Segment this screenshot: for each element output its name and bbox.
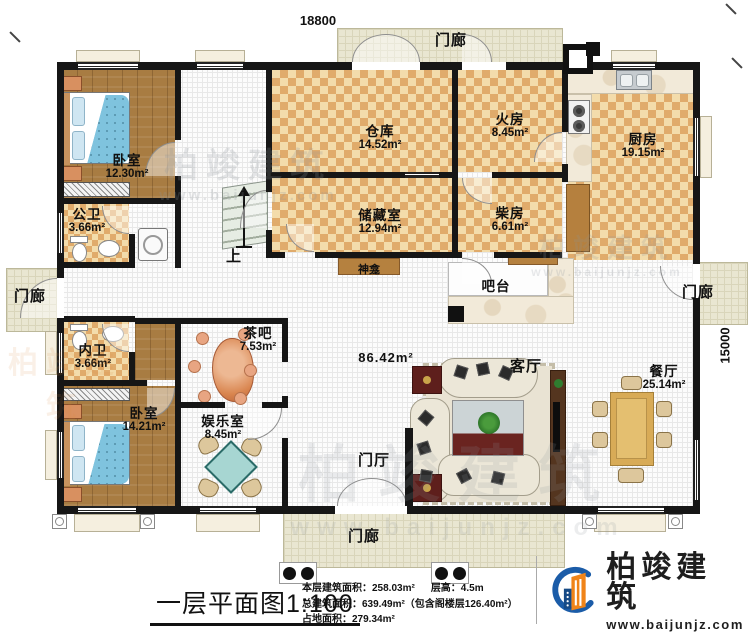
bed-sheet-fold [87, 424, 107, 484]
window [693, 118, 700, 176]
plant [478, 412, 500, 434]
washing-machine [138, 228, 168, 261]
column-marker [582, 514, 597, 529]
tea-stool [244, 364, 257, 377]
pillow [72, 131, 85, 160]
tea-stool [196, 332, 209, 345]
dining-chair [618, 468, 644, 483]
dining-table-top [616, 398, 647, 459]
label-tea-bar: 茶吧7.53m² [228, 326, 288, 354]
wall-segment [57, 198, 181, 204]
window-sill [76, 50, 140, 62]
window-sill [195, 50, 245, 62]
label-porch-bottom: 门廊 [338, 528, 390, 546]
sink-bowl [636, 74, 649, 87]
burner [573, 120, 585, 132]
label-firewood: 柴房6.61m² [475, 206, 545, 234]
window-sill [74, 514, 140, 532]
dining-chair [656, 401, 672, 417]
pillow [72, 456, 85, 482]
brand-text: 柏竣建筑 www.baijunjz.com [606, 553, 744, 632]
window-sill [611, 50, 657, 62]
wall-segment [57, 262, 135, 268]
brand-logo-icon [548, 563, 598, 621]
window [598, 506, 664, 514]
sofa-pillow [419, 469, 433, 483]
bar-column [448, 306, 464, 322]
dining-chair [656, 432, 672, 448]
dimension-width: 18800 [288, 13, 348, 28]
sink [98, 240, 120, 257]
column-marker [140, 514, 155, 529]
end-table [412, 366, 442, 394]
label-warehouse: 仓库14.52m² [340, 124, 420, 152]
wall-segment [405, 428, 413, 508]
door-opening [335, 506, 407, 514]
label-bedroom1: 卧室12.30m² [92, 153, 162, 181]
door-opening [57, 278, 64, 318]
wall-segment [282, 438, 288, 508]
wall-segment [175, 176, 181, 268]
window [78, 506, 136, 514]
wall-segment [315, 252, 462, 258]
dimension-height: 15000 [718, 316, 733, 376]
tv [553, 402, 560, 452]
label-kitchen: 厨房19.15m² [603, 132, 683, 160]
column-marker [668, 514, 683, 529]
washer-drum [143, 235, 163, 255]
wall-segment [452, 68, 458, 258]
window [197, 62, 243, 70]
label-storage: 储藏室12.94m² [335, 208, 425, 236]
wall-segment [262, 402, 288, 408]
wall-segment [562, 164, 568, 182]
brand-logo: 柏竣建筑 www.baijunjz.com [548, 560, 744, 624]
window [78, 62, 138, 70]
chimney-flue [586, 42, 600, 56]
wall-segment [562, 68, 568, 132]
window [693, 440, 700, 500]
footer-divider [536, 556, 537, 624]
label-public-bath: 公卫3.66m² [58, 207, 116, 235]
brand-name: 柏竣建筑 [606, 553, 744, 613]
wardrobe [62, 388, 130, 401]
door-opening [352, 62, 420, 70]
label-foyer: 门厅 [344, 452, 404, 470]
brand-url: www.baijunjz.com [606, 617, 744, 632]
label-shrine: 神龛 [338, 260, 400, 278]
wall-segment [492, 172, 562, 178]
window-sill [594, 514, 666, 532]
dimension-tick [731, 57, 742, 68]
window [613, 62, 655, 70]
tea-stool [188, 360, 201, 373]
label-bar: 吧台 [466, 278, 526, 296]
window-sill [700, 116, 712, 178]
bar-counter-front [448, 296, 574, 324]
stairs-up-label: 上 [222, 248, 246, 266]
toilet-bowl [72, 243, 87, 262]
toilet [70, 324, 88, 331]
window-sill [196, 514, 260, 532]
label-inner-bath: 内卫3.66m² [64, 343, 122, 371]
end-table-lamp [423, 484, 431, 492]
stats-line1: 本层建筑面积：258.03m²层高：4.5m [302, 581, 532, 597]
warehouse-floor [272, 70, 452, 172]
toilet [70, 236, 88, 243]
wall-segment [175, 68, 181, 140]
wall-segment [494, 252, 562, 258]
floor-plan: 18800 15000 上 [0, 0, 750, 630]
label-porch-top: 门廊 [426, 32, 476, 50]
kitchen-cabinet [566, 184, 590, 252]
column-marker [52, 514, 67, 529]
window [405, 172, 439, 178]
window [57, 333, 64, 373]
pillow [72, 425, 85, 451]
wall-segment [57, 380, 147, 386]
porch-bottom [283, 512, 565, 568]
window [57, 432, 64, 478]
tv-plant [554, 379, 563, 388]
window-sill [45, 430, 57, 480]
pillow [72, 97, 85, 126]
label-porch-right: 门廊 [672, 284, 724, 302]
stairs-arrow-head [238, 186, 250, 196]
label-porch-left: 门廊 [6, 288, 54, 306]
dining-chair [592, 401, 608, 417]
kitchen-sink [616, 70, 652, 90]
label-bedroom2: 卧室14.21m² [110, 406, 178, 434]
wall-segment [266, 252, 285, 258]
dining-chair [592, 432, 608, 448]
dimension-tick [9, 31, 20, 42]
dining-table [610, 392, 654, 466]
label-hall-area: 86.42m² [350, 349, 422, 367]
wall-segment [175, 402, 225, 408]
plan-stats: 本层建筑面积：258.03m²层高：4.5m 总建筑面积：639.49m²（包含… [302, 581, 532, 628]
window [200, 506, 256, 514]
label-living-room: 客厅 [496, 358, 556, 376]
wall-segment [57, 316, 135, 322]
stats-line3: 占地面积：279.34m² [302, 612, 532, 628]
end-table-lamp [423, 376, 431, 384]
wardrobe [62, 182, 130, 197]
burner [573, 105, 585, 117]
label-fire-room: 火房8.45m² [475, 112, 545, 140]
sink-bowl [620, 74, 633, 87]
stats-line2: 总建筑面积：639.49m²（包含阁楼层126.40m²） [302, 597, 532, 613]
stove [568, 100, 590, 134]
window-sill [45, 331, 57, 375]
door-opening [462, 62, 506, 70]
label-dining-room: 餐厅25.14m² [628, 364, 700, 392]
label-rec-room: 娱乐室8.45m² [190, 414, 256, 442]
sofa-bottom [438, 454, 540, 496]
sofa-pillow [476, 362, 490, 376]
dimension-tick [725, 3, 736, 14]
tea-stool [234, 392, 247, 405]
wall-segment [135, 318, 285, 324]
